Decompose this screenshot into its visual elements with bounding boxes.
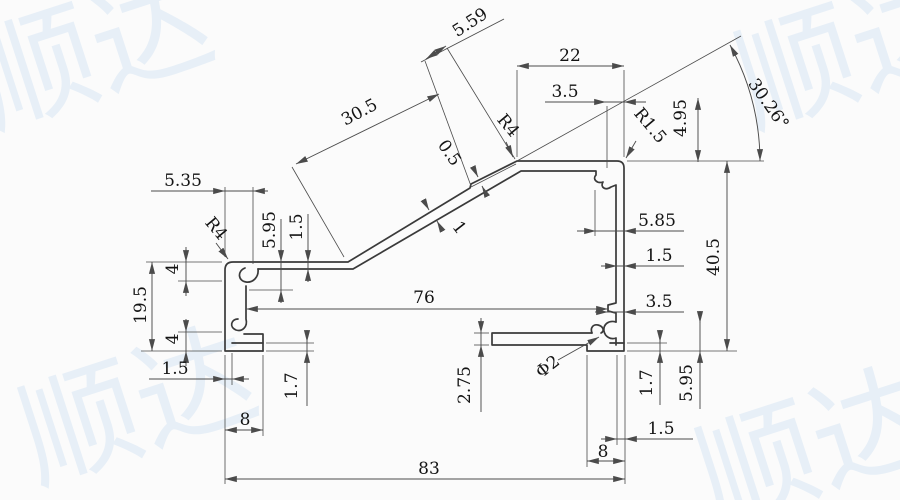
- dim-radius-top-left: R4: [201, 213, 232, 259]
- dim-left-foot-width-label: 8: [240, 410, 251, 430]
- dim-top-width: 22: [517, 46, 624, 66]
- dim-slope-wall-thickness: 1: [424, 201, 470, 238]
- drawing-page: 顺达 顺达 顺达 顺达: [0, 0, 900, 500]
- dim-top-width-label: 22: [559, 46, 581, 66]
- profile-outer-contour: [225, 161, 624, 351]
- dim-screw-port-diameter: Φ2: [532, 337, 599, 383]
- dim-inner-width-label: 76: [413, 288, 435, 308]
- dim-right-foot-thickness-label: 1.7: [637, 369, 657, 396]
- left-top-hook: [239, 268, 258, 282]
- dim-slope-segment-length: 5.59: [421, 4, 504, 62]
- profile-inner-contour: [258, 171, 616, 322]
- watermark-text: 顺达: [718, 0, 900, 155]
- dim-right-hook-depth-label: 5.85: [638, 211, 676, 231]
- dim-right-wall-thickness-label: 1.5: [645, 246, 672, 266]
- dim-left-wall-height-label: 19.5: [131, 286, 151, 324]
- watermark-text: 顺达: [0, 0, 229, 155]
- dim-top-drop: 4.95: [671, 98, 698, 162]
- drawing-canvas: 顺达 顺达 顺达 顺达: [0, 0, 900, 500]
- dim-radius-top-left-label: R4: [201, 213, 232, 244]
- profile-outline: [225, 161, 624, 351]
- dim-slope-length: 30.5: [296, 94, 439, 164]
- dim-overall-height-label: 40.5: [704, 238, 724, 276]
- dim-inner-width: 76: [246, 288, 608, 309]
- watermark-text: 顺达: [679, 344, 900, 500]
- dim-right-foot-width-label: 8: [598, 442, 609, 462]
- dim-left-wall-thickness-label: 1.5: [161, 359, 188, 379]
- dim-right-wall-thickness: 1.5: [601, 246, 684, 266]
- dim-radius-slope-top: R4: [493, 110, 524, 157]
- dim-radius-top-right: R1.5: [626, 104, 670, 158]
- dim-right-wall-thickness-bottom: 1.5: [601, 419, 693, 439]
- dim-right-foot-inner-height: 5.95: [677, 311, 700, 409]
- dim-right-foot-thickness: 1.7: [637, 330, 660, 405]
- dim-overall-width-label: 83: [418, 459, 440, 479]
- dim-web-thickness-label: 2.75: [455, 366, 475, 404]
- dim-right-rib-depth-label: 3.5: [645, 292, 672, 312]
- dim-left-step-upper-label: 4: [163, 264, 183, 275]
- dim-web-thickness: 2.75: [455, 318, 481, 412]
- dim-slope-step: 0.5: [433, 136, 487, 196]
- dim-left-hook-depth: 5.95: [260, 211, 281, 303]
- dim-top-flange-thickness-label: 1.5: [287, 213, 307, 240]
- dim-left-foot-thickness-label: 1.7: [282, 372, 302, 399]
- dim-radius-slope-top-label: R4: [493, 110, 524, 141]
- watermark: 顺达 顺达 顺达 顺达: [0, 0, 900, 500]
- screw-port-boss: [604, 321, 616, 345]
- dim-top-hook-width-label: 3.5: [551, 82, 578, 102]
- dim-slope-segment-length-label: 5.59: [449, 4, 492, 41]
- dim-right-wall-thickness-bottom-label: 1.5: [647, 419, 674, 439]
- dim-left-slot-width-label: 5.35: [164, 171, 202, 191]
- dim-top-drop-label: 4.95: [671, 99, 691, 137]
- dim-slope-step-label: 0.5: [433, 136, 465, 170]
- dim-left-hook-depth-label: 5.95: [260, 211, 280, 249]
- screw-port-hook: [591, 325, 603, 333]
- dim-top-hook-width: 3.5: [545, 82, 646, 102]
- dim-overall-height: 40.5: [704, 161, 727, 351]
- dim-right-foot-width: 8: [587, 442, 625, 462]
- dim-right-hook-depth: 5.85: [577, 211, 684, 231]
- dim-overall-width: 83: [225, 459, 625, 479]
- dim-left-foot-thickness: 1.7: [282, 330, 307, 406]
- dim-left-step-upper: 4: [163, 247, 186, 296]
- watermark-text: 顺达: [2, 304, 273, 500]
- dim-top-flange-thickness: 1.5: [287, 213, 308, 282]
- dim-left-slot-width: 5.35: [151, 171, 268, 191]
- dim-slope-wall-thickness-label: 1: [448, 217, 470, 238]
- dim-screw-port-diameter-label: Φ2: [532, 352, 564, 383]
- dim-right-foot-inner-height-label: 5.95: [677, 364, 697, 402]
- dim-left-step-lower-label: 4: [163, 334, 183, 345]
